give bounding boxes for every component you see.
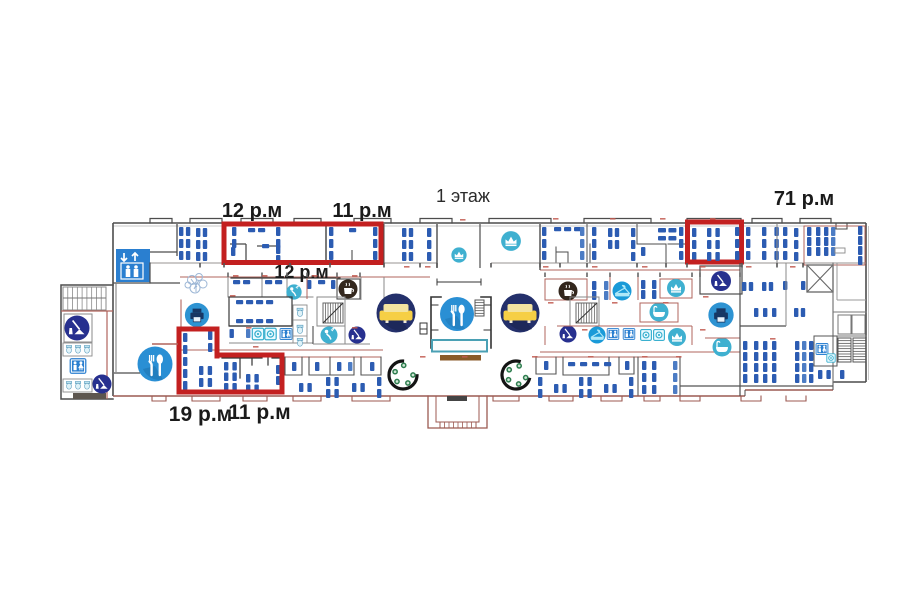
svg-text:71 р.м: 71 р.м [774, 188, 834, 210]
svg-text:WC: WC [75, 374, 82, 379]
svg-text:1 этаж: 1 этаж [436, 186, 490, 206]
svg-text:11 р.м: 11 р.м [228, 401, 290, 424]
svg-text:11 р.м: 11 р.м [332, 200, 391, 222]
svg-text:12 р.м: 12 р.м [222, 200, 282, 222]
svg-text:19 р.м: 19 р.м [169, 403, 232, 426]
svg-text:12 р.м: 12 р.м [274, 262, 328, 282]
